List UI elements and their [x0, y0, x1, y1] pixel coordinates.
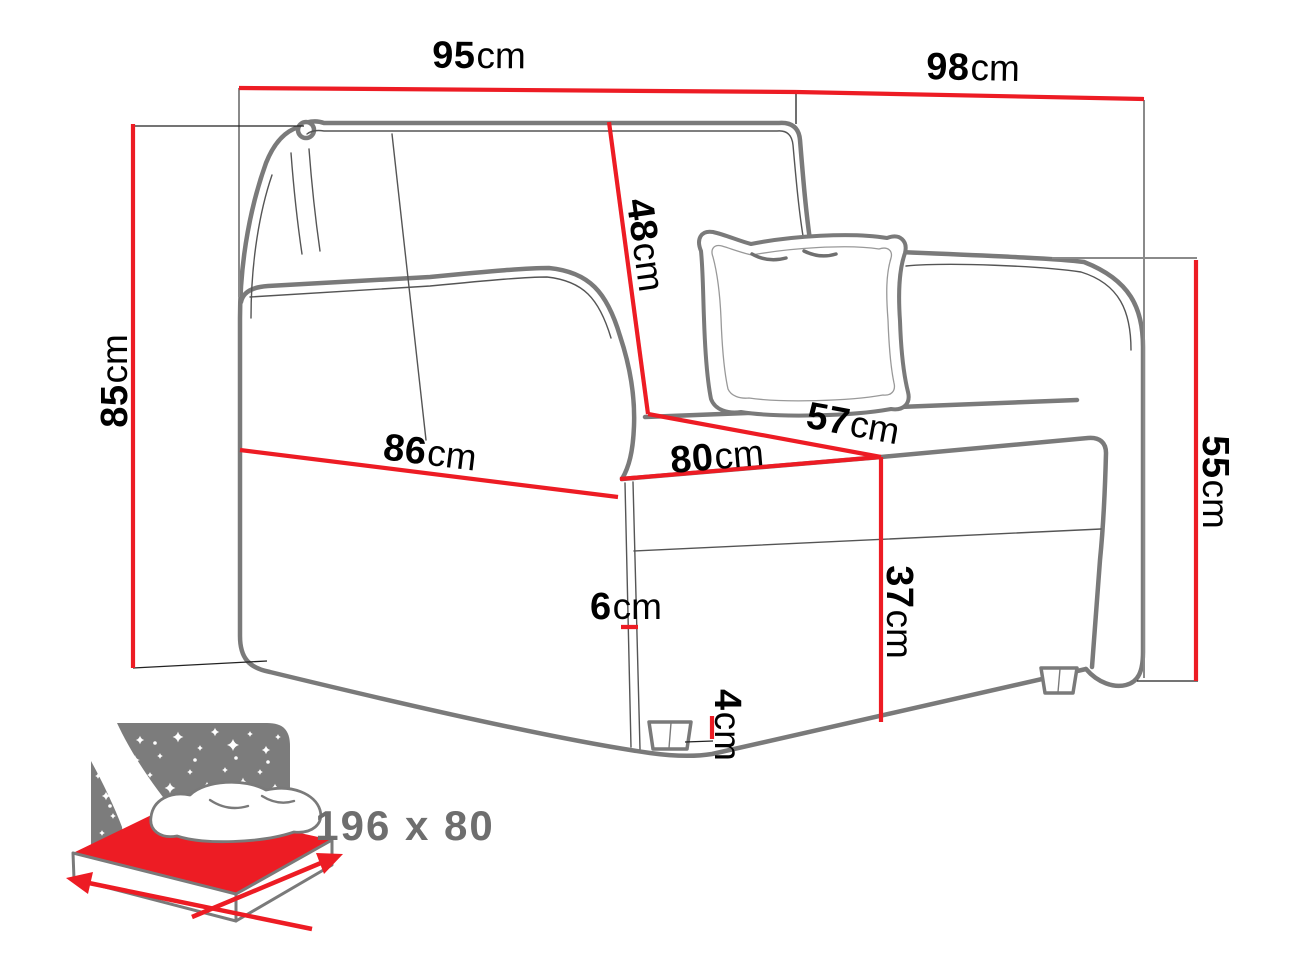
pillow [699, 232, 909, 416]
dimension-value: 48 [618, 196, 666, 245]
dimension-unit: cm [476, 35, 526, 76]
dimension-value: 98 [926, 46, 970, 89]
diagram-canvas [0, 0, 1298, 974]
dimension-value: 85 [94, 385, 136, 428]
sleeping-area-size-label: 196 x 80 [315, 802, 495, 850]
dimension-unit: cm [94, 334, 135, 383]
dimension-value: 86 [381, 426, 429, 473]
dimension-label-55: 55cm [1196, 435, 1234, 529]
dimension-value: 95 [432, 35, 476, 77]
dimension-unit: cm [1195, 479, 1236, 528]
dimension-label-85: 85cm [96, 334, 134, 428]
dimension-unit: cm [425, 432, 479, 479]
furniture-dimension-diagram: 95cm 98cm 85cm 48cm 57cm 80cm 86cm 37cm … [0, 0, 1298, 974]
dimension-value: 80 [669, 436, 716, 482]
dimension-unit: cm [613, 586, 662, 627]
dimension-value: 37 [878, 565, 920, 608]
sleeping-icon [0, 0, 343, 929]
dimension-unit: cm [970, 47, 1020, 89]
dimension-label-98: 98cm [926, 48, 1020, 88]
dimension-label-4: 4cm [708, 689, 746, 761]
dimension-value: 57 [803, 395, 853, 444]
dimension-lines [133, 88, 1196, 739]
dimension-value: 6 [590, 586, 612, 628]
dimension-label-80: 80cm [669, 434, 766, 480]
dimension-unit: cm [625, 240, 672, 295]
dimension-label-95: 95cm [432, 37, 526, 76]
dimension-label-6: 6cm [590, 588, 662, 626]
sleeping-area-size-value: 196 x 80 [315, 802, 495, 849]
dimension-value: 4 [706, 689, 748, 711]
dimension-unit: cm [713, 432, 766, 477]
dimension-unit: cm [847, 403, 903, 452]
dimension-unit: cm [707, 712, 748, 761]
dimension-value: 55 [1194, 435, 1236, 478]
dimension-unit: cm [879, 609, 920, 658]
dimension-label-37: 37cm [880, 565, 918, 659]
